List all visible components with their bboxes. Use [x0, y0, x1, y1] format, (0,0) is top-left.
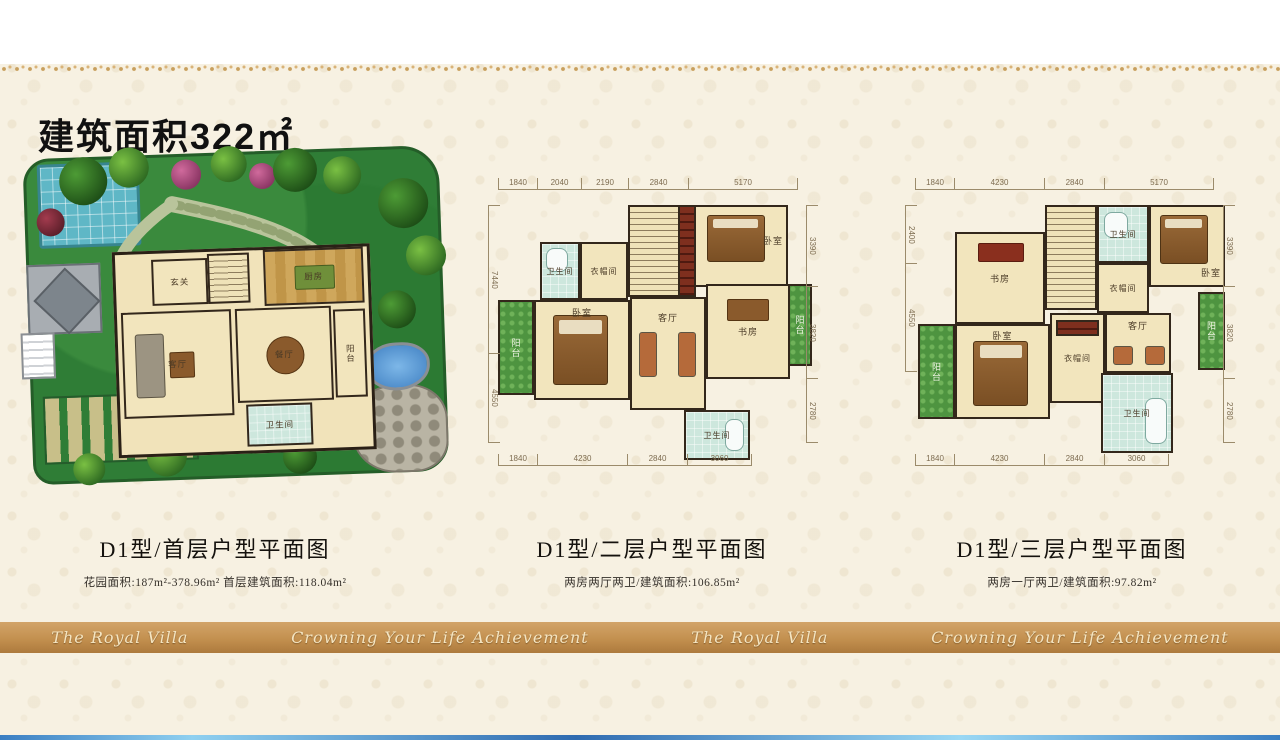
dim-value: 3820: [1223, 286, 1235, 378]
room-bath: 卫生间: [246, 402, 313, 446]
room-balcony-right: 阳台: [1198, 292, 1225, 370]
banner-text: Crowning Your Life Achievement: [291, 628, 589, 647]
decorative-border-top: [0, 64, 1280, 74]
room-label-bath-top: 卫生间: [547, 266, 574, 277]
dim-value: 3060: [1104, 454, 1169, 466]
dimension-col-right: 3390 3820 2780: [1223, 205, 1235, 443]
room-label-bedroom-main: 卧室: [572, 306, 592, 319]
room-bedroom-main: 卧室: [534, 300, 630, 400]
dimension-row-bottom: 1840 4230 2840 3060: [498, 454, 752, 466]
room-label-study: 书房: [738, 325, 758, 338]
room-label-bath: 卫生间: [265, 418, 294, 431]
room-bath-bottom: 卫生间: [684, 410, 750, 460]
room-bath-top: 卫生间: [1097, 205, 1149, 263]
room-label-living: 客厅: [1128, 319, 1148, 332]
room-balcony-left: 阳台: [918, 324, 955, 419]
caption-third-floor: D1型/三层户型平面图 两房一厅两卫/建筑面积:97.82m²: [912, 532, 1232, 590]
room-label-bath-bottom: 卫生间: [704, 430, 731, 441]
dim-value: 1840: [498, 178, 537, 190]
room-label-cloak: 衣帽间: [591, 266, 618, 277]
room-bedroom-top: 卧室: [694, 205, 788, 287]
stairs: [628, 205, 680, 297]
dimension-row-top: 1840 4230 2840 5170: [915, 178, 1214, 190]
bathtub: [1145, 398, 1167, 444]
sofa: [639, 332, 657, 378]
room-label-balcony-right: 阳台: [794, 315, 807, 335]
brand-banner: The Royal Villa Crowning Your Life Achie…: [0, 622, 1280, 653]
floor-plan-third: 1840 4230 2840 5170 2400 4550 3390 3820 …: [905, 172, 1235, 472]
room-living: 客厅: [630, 297, 706, 410]
dim-value: 1840: [498, 454, 537, 466]
caption-title: D1型/首层户型平面图: [55, 532, 375, 564]
dimension-row-bottom: 1840 4230 2840 3060: [915, 454, 1169, 466]
room-label-entry: 玄关: [170, 276, 189, 289]
room-cloak-bottom: 衣帽间: [1050, 313, 1105, 403]
dimension-col-left: 2400 4550: [905, 205, 917, 372]
room-label-living: 客厅: [658, 311, 678, 324]
room-balcony: 阳台: [333, 308, 368, 397]
dim-value: 3390: [1223, 205, 1235, 286]
bed-furniture: [1160, 215, 1208, 264]
caption-second-floor: D1型/二层户型平面图 两房两厅两卫/建筑面积:106.85m²: [492, 532, 812, 590]
banner-text: The Royal Villa: [691, 628, 828, 647]
room-balcony-left: 阳台: [498, 300, 534, 395]
dim-value: 3390: [806, 205, 818, 286]
dim-value: 3060: [687, 454, 752, 466]
room-label-bedroom-top: 卧室: [1201, 266, 1221, 279]
room-study: 书房: [955, 232, 1045, 324]
dim-value: 3820: [806, 286, 818, 378]
dim-value: 2840: [627, 454, 687, 466]
caption-first-floor: D1型/首层户型平面图 花园面积:187m²-378.96m² 首层建筑面积:1…: [55, 532, 375, 590]
room-living: 客厅: [1105, 313, 1171, 373]
dim-value: 5170: [1104, 178, 1214, 190]
room-dining: 餐厅: [235, 306, 334, 403]
dim-value: 2840: [1044, 454, 1104, 466]
desk: [978, 243, 1025, 263]
caption-subtitle: 花园面积:187m²-378.96m² 首层建筑面积:118.04m²: [55, 574, 375, 590]
dim-value: 1840: [915, 178, 954, 190]
dim-value: 2780: [806, 378, 818, 443]
dim-value: 2400: [905, 205, 917, 263]
dim-value: 2840: [628, 178, 688, 190]
floor-plan-second: 1840 2040 2190 2840 5170 7440 4550 3390 …: [488, 172, 818, 472]
room-label-study: 书房: [990, 272, 1010, 285]
dim-value: 2840: [1044, 178, 1104, 190]
dim-value: 2190: [581, 178, 628, 190]
room-bath-top: 卫生间: [540, 242, 580, 300]
room-cloak-top: 衣帽间: [1097, 263, 1149, 313]
caption-subtitle: 两房两厅两卫/建筑面积:106.85m²: [492, 574, 812, 590]
top-white-band: [0, 0, 1280, 64]
room-cloak: 衣帽间: [580, 242, 628, 300]
room-study: 书房: [706, 284, 790, 379]
room-bedroom-main: 卧室: [955, 324, 1050, 419]
bed-furniture: [973, 341, 1028, 407]
room-label-kitchen: 厨房: [304, 270, 323, 283]
bed-furniture: [707, 215, 765, 262]
stairs: [207, 253, 251, 304]
dim-value: 4550: [488, 353, 500, 443]
dim-value: 4230: [954, 454, 1044, 466]
room-label-living: 客厅: [168, 358, 187, 371]
room-label-bedroom-main: 卧室: [992, 329, 1012, 342]
wardrobe-cabinet: [1056, 320, 1099, 335]
room-label-dining: 餐厅: [275, 348, 294, 361]
bed-furniture: [553, 315, 608, 384]
house-footprint: 玄关 厨房 客厅 餐厅 阳台 卫生间: [112, 243, 377, 458]
dim-value: 7440: [488, 205, 500, 353]
sofa: [1145, 346, 1164, 365]
caption-title: D1型/三层户型平面图: [912, 532, 1232, 564]
caption-subtitle: 两房一厅两卫/建筑面积:97.82m²: [912, 574, 1232, 590]
room-label-cloak-bottom: 衣帽间: [1064, 353, 1091, 364]
room-entry: 玄关: [151, 258, 209, 306]
room-bedroom-top: 卧室: [1149, 205, 1225, 287]
dim-value: 4230: [537, 454, 627, 466]
sofa: [678, 332, 696, 378]
dim-value: 2780: [1223, 378, 1235, 443]
room-living: 客厅: [121, 309, 235, 419]
caption-title: D1型/二层户型平面图: [492, 532, 812, 564]
garden-plan: 玄关 厨房 客厅 餐厅 阳台 卫生间: [20, 143, 451, 487]
room-label-balcony: 阳台: [344, 343, 357, 362]
banner-text: The Royal Villa: [51, 628, 188, 647]
bottom-accent-bar: [0, 735, 1280, 740]
room-bath-bottom: 卫生间: [1101, 373, 1173, 453]
room-label-balcony-left: 阳台: [510, 338, 523, 358]
dim-value: 1840: [915, 454, 954, 466]
room-label-balcony-right: 阳台: [1205, 321, 1218, 341]
dimension-col-left: 7440 4550: [488, 205, 500, 443]
room-label-cloak-top: 衣帽间: [1110, 283, 1137, 294]
dim-value: 4230: [954, 178, 1044, 190]
dimension-row-top: 1840 2040 2190 2840 5170: [498, 178, 798, 190]
stairs: [1045, 205, 1097, 310]
room-label-bath-top: 卫生间: [1110, 229, 1137, 240]
banner-text: Crowning Your Life Achievement: [931, 628, 1229, 647]
sofa: [1113, 346, 1132, 365]
sofa: [134, 334, 166, 398]
room-label-bath-bottom: 卫生间: [1124, 408, 1151, 419]
dim-value: 4550: [905, 263, 917, 372]
dim-value: 5170: [688, 178, 798, 190]
dimension-col-right: 3390 3820 2780: [806, 205, 818, 443]
desk: [727, 299, 769, 321]
room-label-bedroom-top: 卧室: [763, 234, 783, 247]
room-kitchen: 厨房: [263, 247, 365, 306]
dim-value: 2040: [537, 178, 581, 190]
room-label-balcony-left: 阳台: [930, 362, 943, 382]
